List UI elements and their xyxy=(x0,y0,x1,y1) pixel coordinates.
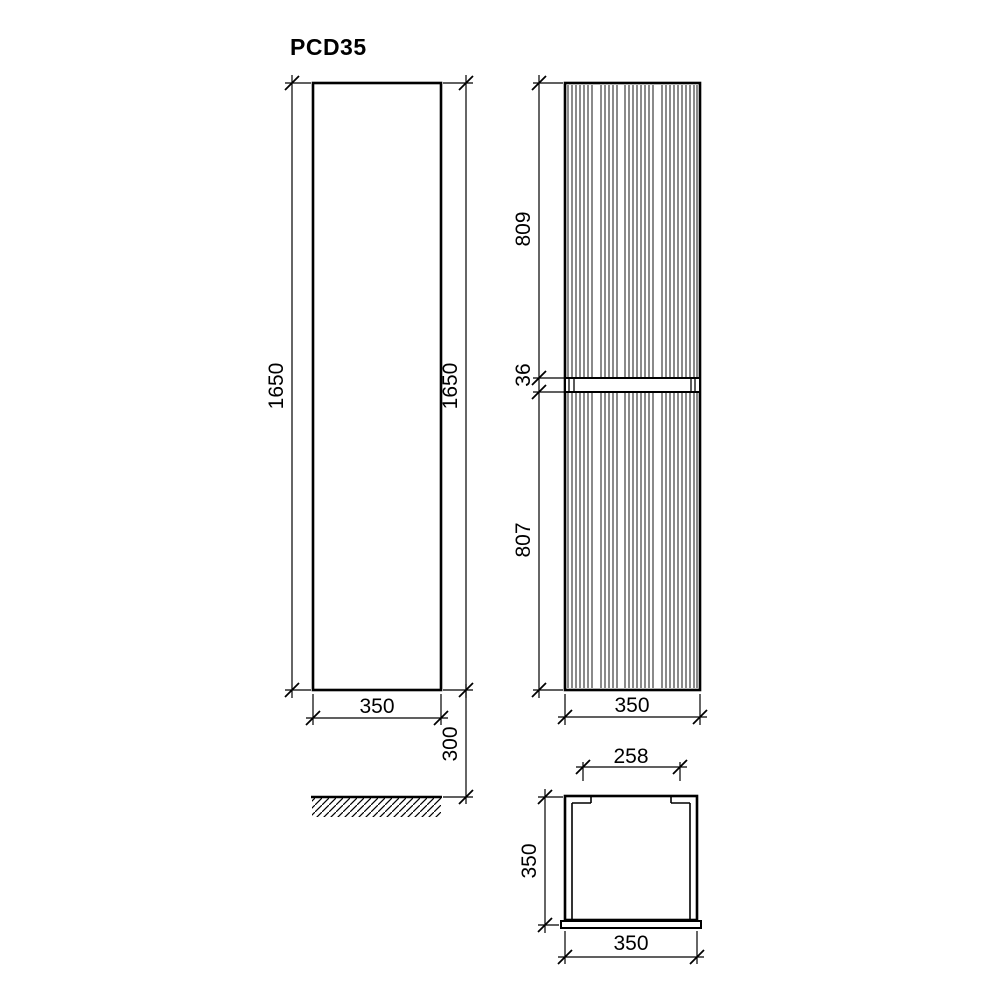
dim-floor-clearance-label: 300 xyxy=(439,726,462,761)
door-front-strip xyxy=(561,921,701,928)
dim-top-opening-label: 258 xyxy=(613,745,648,768)
top-view xyxy=(561,796,701,928)
dim-top-depth: 350 xyxy=(518,789,563,933)
drawing-title: PCD35 xyxy=(290,34,367,60)
dim-front-sections: 809 36 807 xyxy=(512,75,565,698)
dim-top-opening: 258 xyxy=(576,745,687,781)
dim-top-width: 350 xyxy=(558,931,704,964)
dim-top-depth-label: 350 xyxy=(518,843,541,878)
dim-front-upper-label: 809 xyxy=(512,211,535,246)
floor-hatch-area xyxy=(312,798,441,817)
dim-front-width: 350 xyxy=(558,694,707,725)
cabinet-dimension-drawing: PCD35 1650 1650 300 350 xyxy=(0,0,1000,1000)
dim-side-width: 350 xyxy=(306,694,448,725)
dim-floor-clearance: 300 xyxy=(439,684,473,804)
dim-front-gap-label: 36 xyxy=(512,363,535,386)
top-view-outline xyxy=(565,796,697,920)
dim-top-width-label: 350 xyxy=(613,932,648,955)
dim-side-width-label: 350 xyxy=(359,695,394,718)
technical-drawing-canvas: PCD35 1650 1650 300 350 xyxy=(0,0,1000,1000)
side-view xyxy=(313,83,441,690)
front-view xyxy=(565,83,700,690)
floor-hatch xyxy=(311,797,442,817)
dim-side-height-right-label: 1650 xyxy=(439,363,462,410)
dim-front-lower-label: 807 xyxy=(512,522,535,557)
dim-front-width-label: 350 xyxy=(614,694,649,717)
door-gap-band xyxy=(565,378,700,392)
dim-side-height-left: 1650 xyxy=(265,75,311,698)
dim-side-height-left-label: 1650 xyxy=(265,363,288,410)
dim-side-height-right: 1650 xyxy=(439,75,473,698)
side-view-outline xyxy=(313,83,441,690)
